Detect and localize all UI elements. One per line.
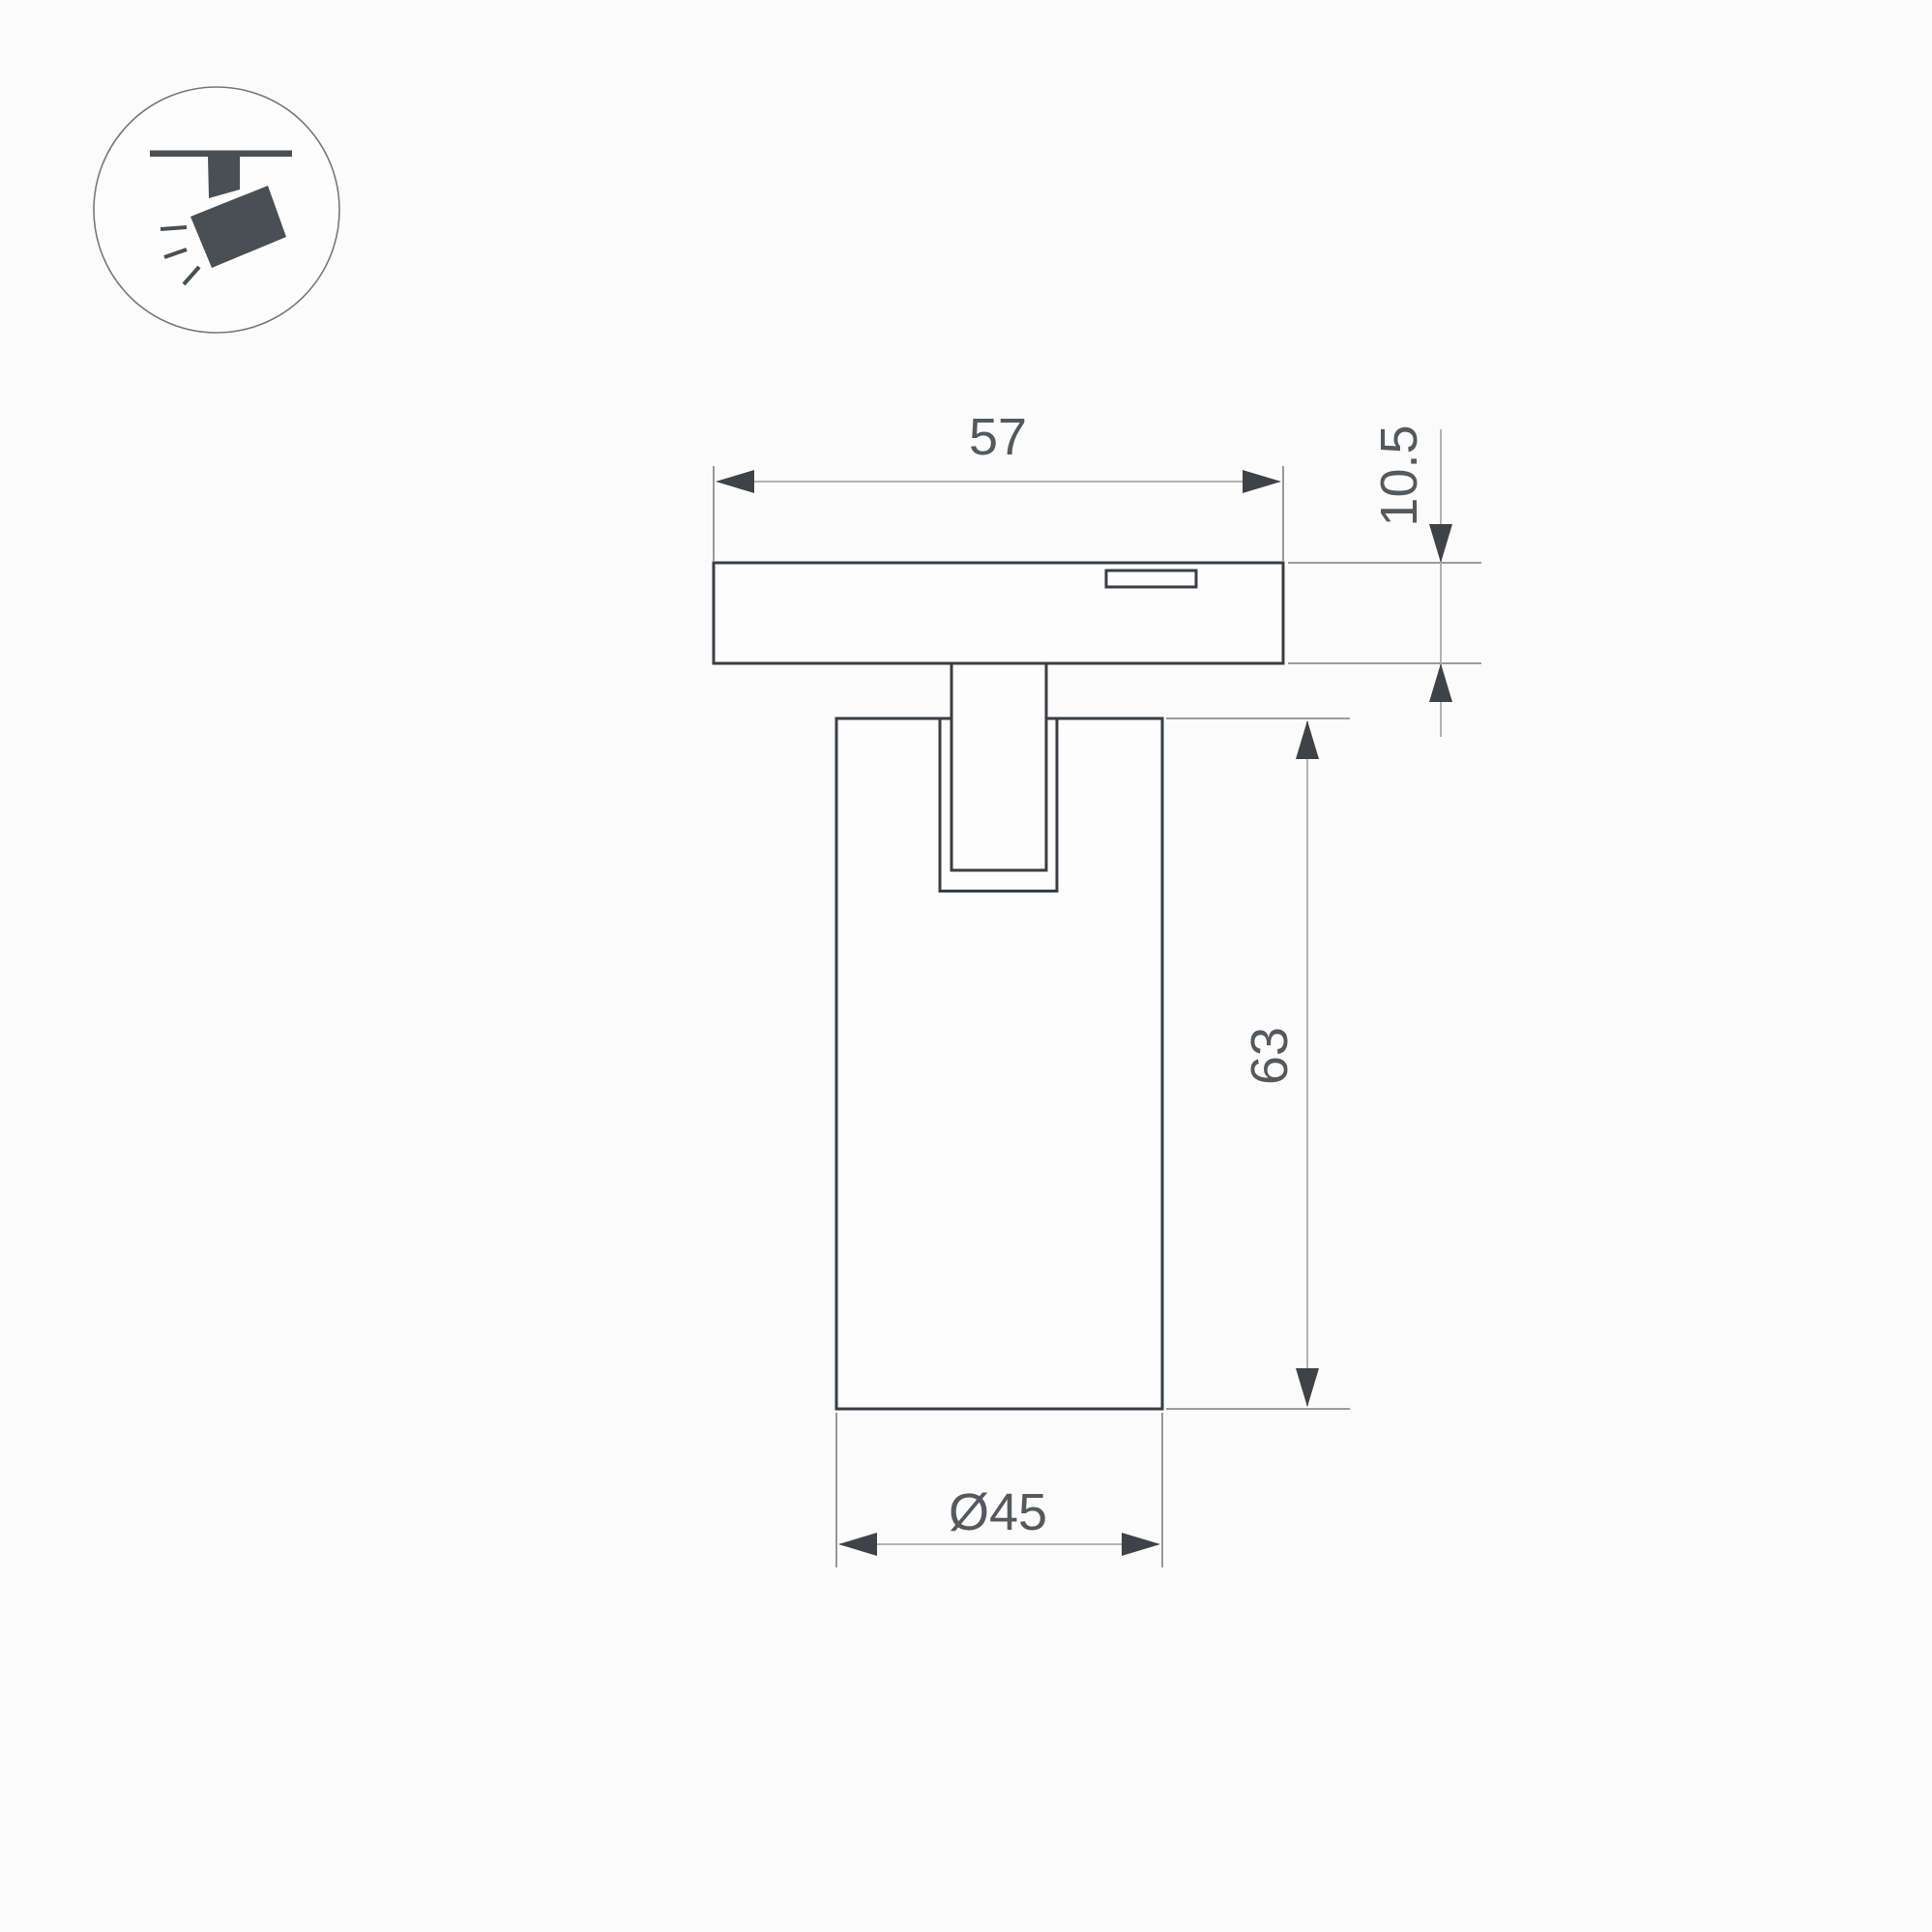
mounting-stem-shape [951,663,1046,870]
icon-light-ray-top [161,227,187,229]
dimension-body-height: 63 [1166,718,1350,1409]
arrowhead-up [1296,720,1319,759]
dimension-adapter-height: 10.5 [1288,424,1481,737]
arrowhead-up [1429,663,1452,702]
dimension-label-body-diameter: Ø45 [949,1483,1047,1541]
arrowhead-left [716,470,754,493]
dimension-label-track-width: 57 [969,408,1027,466]
arrowhead-right [1243,470,1281,493]
track-rail-shape [150,151,292,158]
dimension-label-body-height: 63 [1241,1027,1299,1085]
dimension-body-diameter: Ø45 [836,1413,1162,1567]
fixture-outline [714,563,1283,1409]
arrowhead-left [838,1533,877,1556]
arrowhead-right [1122,1533,1160,1556]
track-adapter-shape [714,563,1283,663]
track-spotlight-icon [94,87,339,333]
dimension-drawing-svg: 57 10.5 63 Ø45 [0,0,1932,1932]
dimension-track-width: 57 [714,408,1283,561]
arrowhead-down [1296,1368,1319,1407]
arrowhead-down [1429,524,1452,563]
dimension-label-adapter-height: 10.5 [1370,424,1428,526]
adapter-slot-shape [1106,571,1196,587]
drawing-canvas: 57 10.5 63 Ø45 [0,0,1932,1932]
